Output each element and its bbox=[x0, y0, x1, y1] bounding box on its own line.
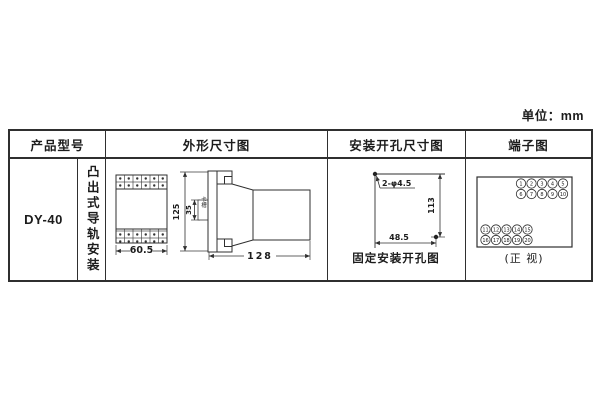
front-width-dim: 60.5 bbox=[130, 245, 153, 256]
header-mounting-hole-dimensions: 安装开孔尺寸图 bbox=[328, 131, 466, 157]
hole-h-spacing-dim: 48.5 bbox=[389, 233, 409, 242]
svg-text:15: 15 bbox=[524, 227, 530, 233]
svg-text:4: 4 bbox=[551, 181, 554, 187]
unit-label: 单位：mm bbox=[522, 105, 584, 124]
svg-text:13: 13 bbox=[503, 227, 509, 233]
svg-text:6: 6 bbox=[519, 192, 522, 198]
svg-text:12: 12 bbox=[493, 227, 499, 233]
front-view: 60.5 bbox=[116, 175, 167, 256]
header-outline-dimensions: 外形尺寸图 bbox=[106, 131, 328, 157]
svg-text:11: 11 bbox=[482, 227, 488, 233]
svg-text:5: 5 bbox=[561, 181, 564, 187]
slot-label: 卡槽 bbox=[200, 195, 207, 209]
table-header-row: 产品型号 外形尺寸图 安装开孔尺寸图 端子图 bbox=[10, 131, 591, 159]
svg-text:20: 20 bbox=[524, 238, 530, 244]
mounting-hole-drawing: 113 48.5 2-φ4.5 固定安装开孔图 bbox=[328, 159, 465, 280]
hole-v-spacing-dim: 113 bbox=[427, 197, 436, 214]
svg-text:14: 14 bbox=[514, 227, 520, 233]
table-body-row: DY-40 凸出式导轨安装 bbox=[10, 159, 591, 280]
product-model: DY-40 bbox=[10, 159, 78, 280]
header-product-model: 产品型号 bbox=[10, 131, 106, 157]
svg-text:3: 3 bbox=[540, 181, 543, 187]
mounting-caption: 固定安装开孔图 bbox=[352, 251, 440, 265]
side-view: 125 35 卡槽 bbox=[172, 171, 310, 262]
svg-text:10: 10 bbox=[560, 192, 566, 198]
terminal-diagram: 1 2 3 4 5 6 7 8 9 10 11 12 13 14 15 16 1 bbox=[466, 159, 591, 280]
cell-mounting-drawing: 113 48.5 2-φ4.5 固定安装开孔图 bbox=[328, 159, 466, 280]
svg-text:9: 9 bbox=[551, 192, 554, 198]
total-height-dim: 125 bbox=[172, 203, 181, 220]
svg-text:1: 1 bbox=[519, 181, 522, 187]
slot-height-dim: 35 bbox=[185, 205, 193, 215]
svg-text:8: 8 bbox=[540, 192, 543, 198]
cell-mounting-type: 凸出式导轨安装 bbox=[78, 159, 105, 280]
svg-text:18: 18 bbox=[503, 238, 509, 244]
total-depth-dim: 128 bbox=[247, 251, 273, 262]
svg-text:19: 19 bbox=[514, 238, 520, 244]
holes-label: 2-φ4.5 bbox=[382, 179, 412, 188]
cell-terminal-drawing: 1 2 3 4 5 6 7 8 9 10 11 12 13 14 15 16 1 bbox=[466, 159, 591, 280]
cell-outline-drawing: 60.5 125 35 卡槽 bbox=[106, 159, 328, 280]
mounting-type-label: 凸出式导轨安装 bbox=[85, 165, 98, 274]
terminal-caption: (正 视) bbox=[504, 251, 543, 265]
spec-table: 产品型号 外形尺寸图 安装开孔尺寸图 端子图 DY-40 凸出式导轨安装 bbox=[8, 129, 593, 282]
svg-text:16: 16 bbox=[482, 238, 488, 244]
header-terminal-diagram: 端子图 bbox=[466, 131, 591, 157]
mounting-hole-top bbox=[373, 172, 377, 176]
svg-text:2: 2 bbox=[530, 181, 533, 187]
svg-text:7: 7 bbox=[530, 192, 533, 198]
mounting-hole-bottom bbox=[434, 235, 438, 239]
svg-text:17: 17 bbox=[493, 238, 499, 244]
outline-drawing: 60.5 125 35 卡槽 bbox=[106, 159, 327, 280]
cell-product-model: DY-40 凸出式导轨安装 bbox=[10, 159, 106, 280]
